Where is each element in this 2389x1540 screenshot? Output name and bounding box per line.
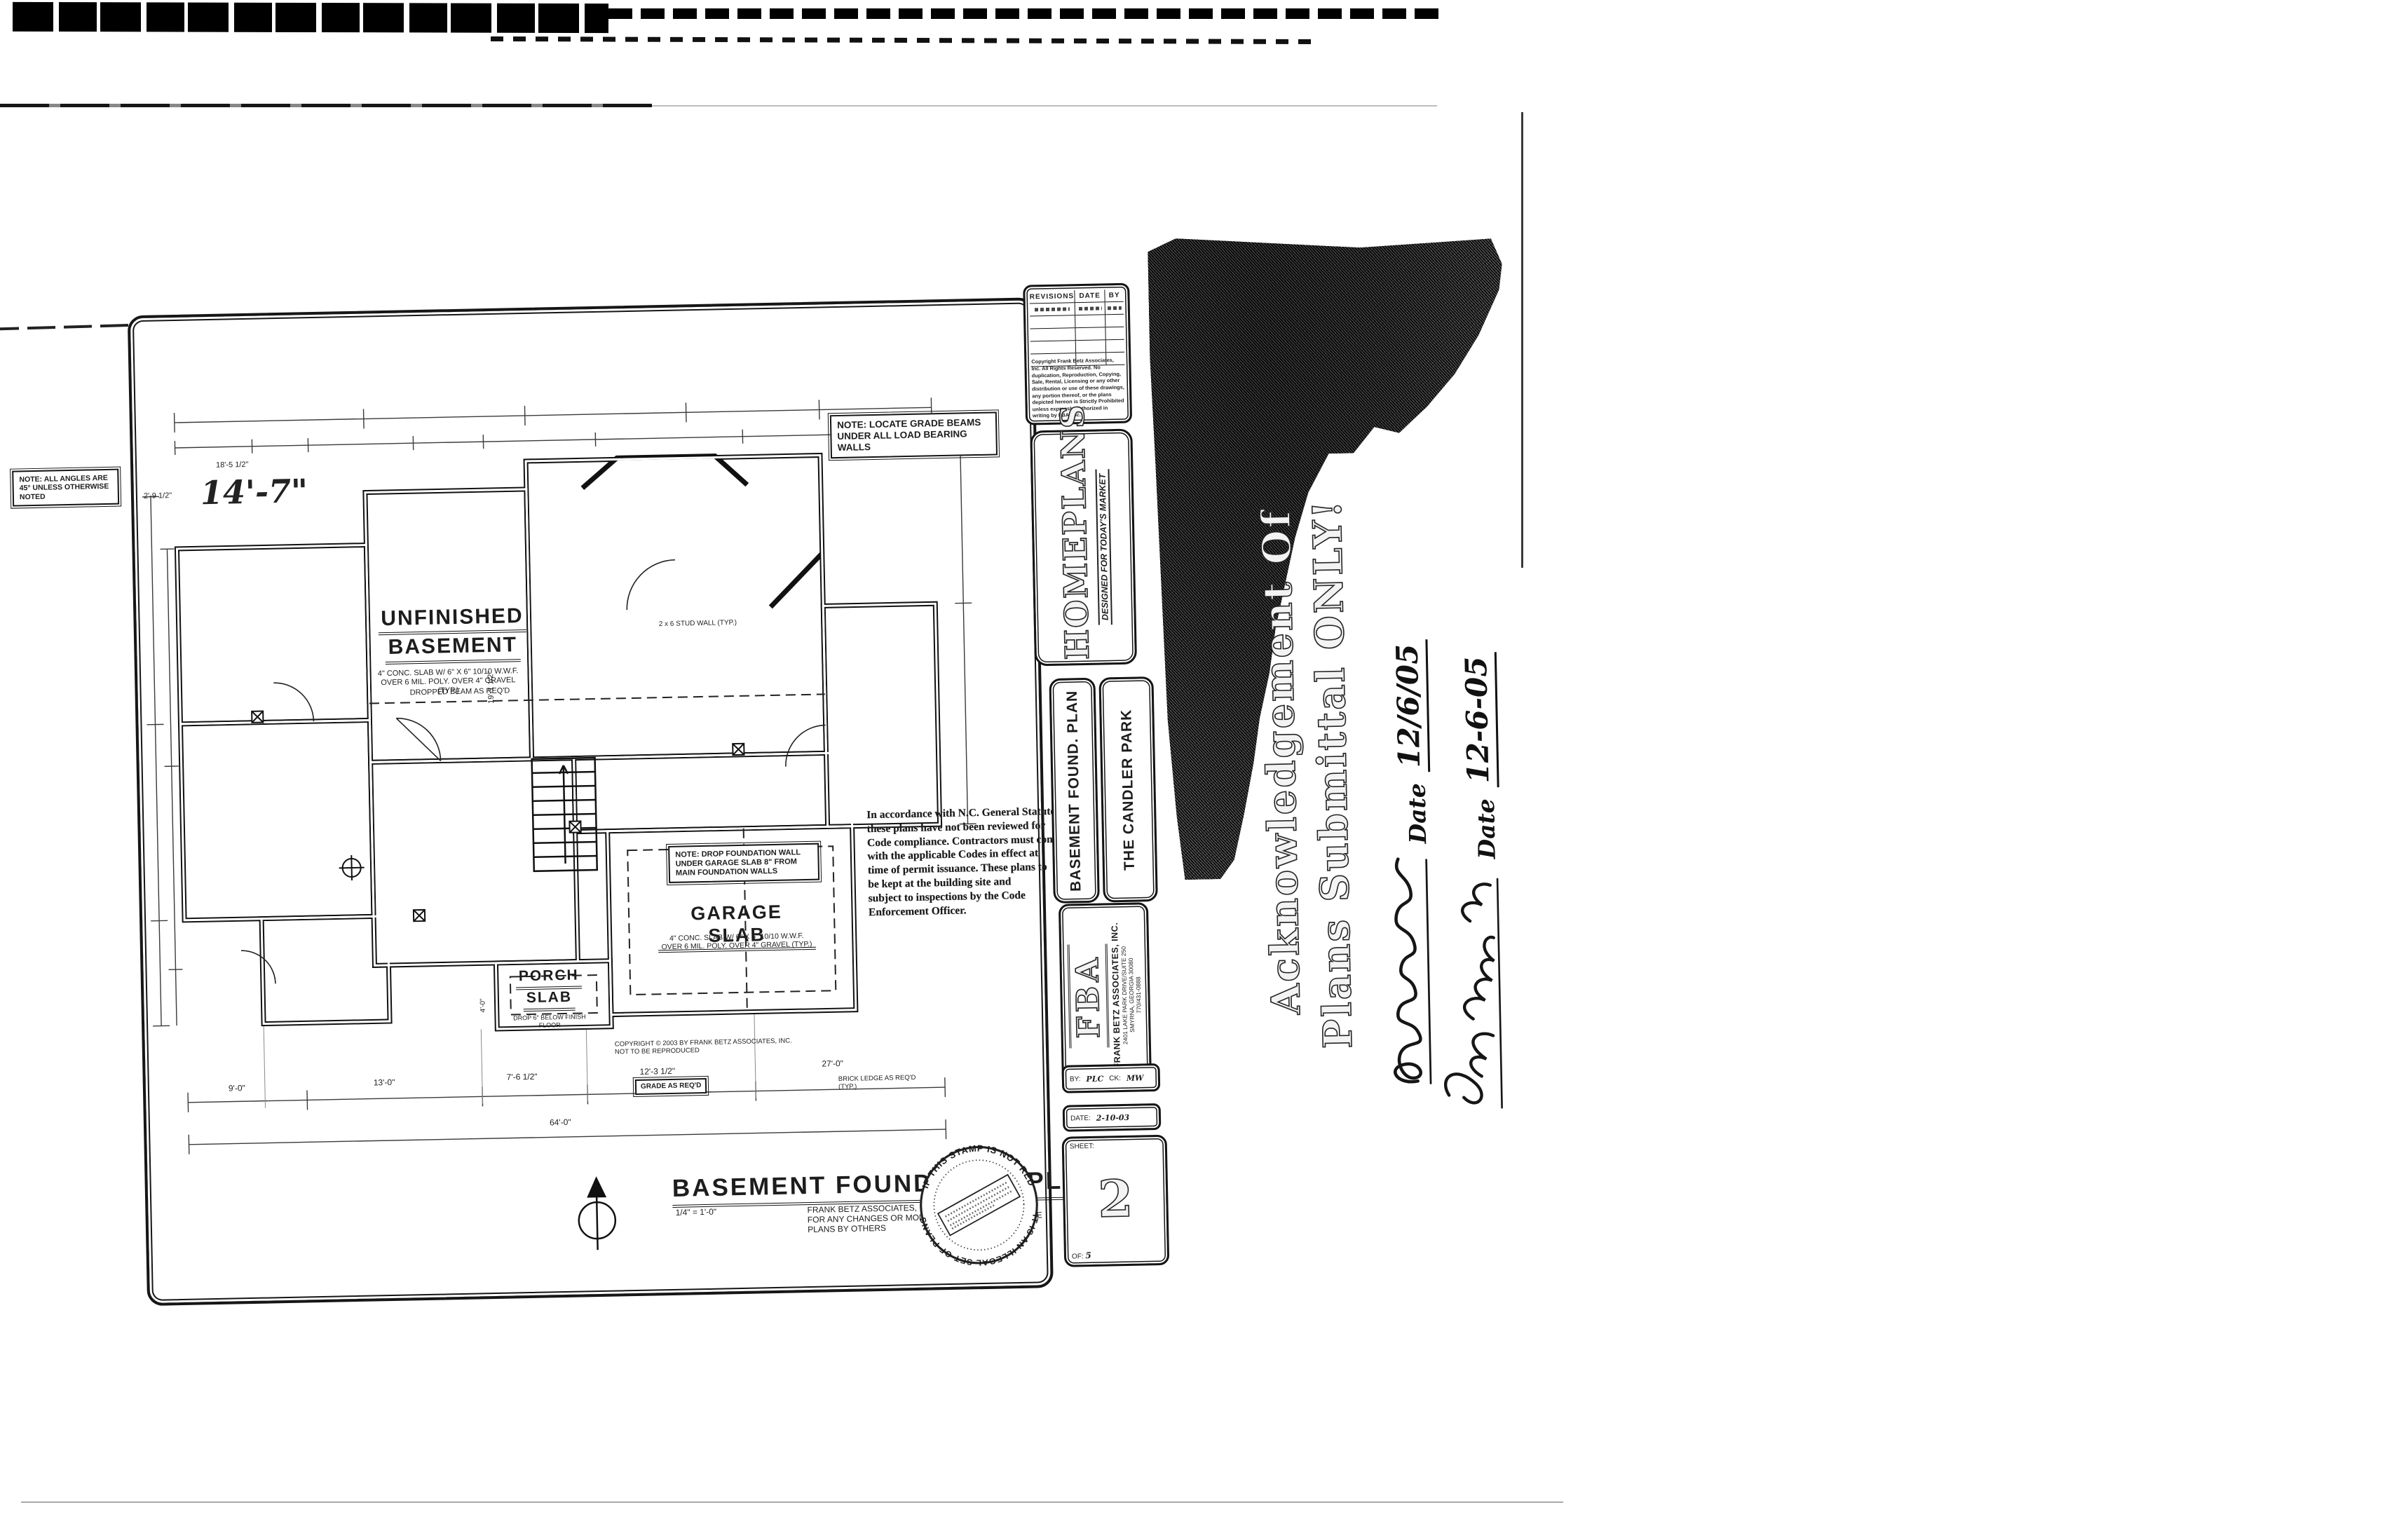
by-label: BY: [1070, 1075, 1081, 1083]
dim-label: 12'-3 1/2" [639, 1066, 675, 1077]
stud-wall-note: 2 x 6 STUD WALL (TYP.) [659, 619, 737, 629]
date-label: DATE: [1070, 1114, 1091, 1122]
signature-row-1: Date 12/6/05 [1368, 639, 1436, 1087]
porch-note: DROP 6" BELOW FINISH FLOOR [503, 1013, 596, 1030]
date-box: DATE: 2-10-03 [1063, 1103, 1162, 1132]
homeplans-wordmark: HOMEPLANS [1054, 435, 1096, 660]
date-value-2: 12-6-05 [1459, 652, 1499, 788]
angles-note: NOTE: ALL ANGLES ARE 45° UNLESS OTHERWIS… [12, 469, 119, 507]
brick-ledge-note: BRICK LEDGE AS REQ'D (TYP.) [838, 1074, 931, 1091]
revisions-table: REVISIONS DATE BY [1029, 289, 1124, 367]
foundation-walls [175, 451, 944, 1035]
room-label-unfinished-basement: UNFINISHED BASEMENT [373, 604, 532, 665]
scanned-page: NOTE: ALL ANGLES ARE 45° UNLESS OTHERWIS… [0, 0, 2389, 1540]
homeplans-logo: HOMEPLANS DESIGNED FOR TODAY'S MARKET [1054, 435, 1112, 660]
sheet-of: OF: 5 [1072, 1251, 1091, 1261]
ck-value: MW [1127, 1073, 1144, 1082]
date-label-2: Date [1472, 798, 1501, 859]
dim-label: 13'-0" [374, 1077, 395, 1088]
by-ck-box: BY: PLC CK: MW [1062, 1063, 1161, 1093]
slab-note: 4" CONC. SLAB W/ 6" X 6" 10/10 W.W.F. OV… [660, 932, 813, 952]
room-label-porch-slab: PORCH SLAB [503, 967, 596, 1011]
dim-label: 2'-9 1/2" [144, 491, 172, 501]
dim-label: 18'-5 1/2" [216, 461, 249, 470]
north-arrow-icon [578, 1178, 616, 1251]
dim-label: 7'-6 1/2" [507, 1072, 538, 1082]
date-label-1: Date [1403, 783, 1432, 844]
firm-block: FBA FRANK BETZ ASSOCIATES, INC. 2401 LAK… [1059, 902, 1152, 1089]
sheet-number: 2 [1097, 1168, 1134, 1229]
plan-authenticity-stamp: IF THIS STAMP IS NOT RED IT IS AN ILLEGA… [916, 1141, 1043, 1272]
dim-label: 27'-0" [822, 1058, 843, 1069]
code-compliance-stamp-text: In accordance with N.C. General Statutes… [866, 804, 1072, 919]
sheet-label: SHEET: [1070, 1143, 1094, 1151]
plan-name: THE CANDLER PARK [1118, 709, 1138, 871]
signature-2 [1434, 870, 1506, 1117]
by-value: PLC [1086, 1074, 1103, 1083]
dim-label-vertical: 4'-0" [479, 998, 487, 1012]
signature-1 [1373, 854, 1437, 1087]
grade-note: GRADE AS REQ'D [635, 1078, 707, 1095]
fba-logo: FBA [1068, 943, 1110, 1049]
firm-info: FBA FRANK BETZ ASSOCIATES, INC. 2401 LAK… [1067, 907, 1144, 1084]
annotation-line-2: Plans Submittal ONLY! [1304, 498, 1361, 1049]
homeplans-tagline: DESIGNED FOR TODAY'S MARKET [1095, 469, 1112, 625]
date-value: 2-10-03 [1096, 1112, 1130, 1122]
sheet-number-box: SHEET: 2 OF: 5 [1062, 1135, 1170, 1267]
plan-scale: 1/4" = 1'-0" [675, 1207, 716, 1218]
date-value-1: 12/6/05 [1389, 639, 1430, 772]
ck-label: CK: [1109, 1075, 1121, 1082]
dim-label-vertical: 19'-1 1/2" [486, 671, 496, 704]
scan-content: NOTE: ALL ANGLES ARE 45° UNLESS OTHERWIS… [0, 0, 2389, 1540]
dim-label-overall: 64'-0" [550, 1117, 571, 1128]
dim-label: 9'-0" [229, 1083, 245, 1093]
drawing-sheet: NOTE: LOCATE GRADE BEAMS UNDER ALL LOAD … [128, 297, 1054, 1306]
handwritten-dimension: 14'-7" [200, 472, 308, 512]
signature-row-2: Date 12-6-05 [1429, 652, 1506, 1117]
sheet-name: BASEMENT FOUND. PLAN [1064, 690, 1085, 892]
garage-drop-note: NOTE: DROP FOUNDATION WALL UNDER GARAGE … [668, 843, 819, 883]
homeplans-logo-box: HOMEPLANS DESIGNED FOR TODAY'S MARKET [1030, 429, 1137, 667]
plan-name-box: THE CANDLER PARK [1098, 676, 1157, 903]
grade-beams-note: NOTE: LOCATE GRADE BEAMS UNDER ALL LOAD … [830, 411, 998, 458]
annotation-line-1: Acknowledgement Of [1253, 509, 1309, 1015]
sheet-name-box: BASEMENT FOUND. PLAN [1049, 678, 1099, 904]
